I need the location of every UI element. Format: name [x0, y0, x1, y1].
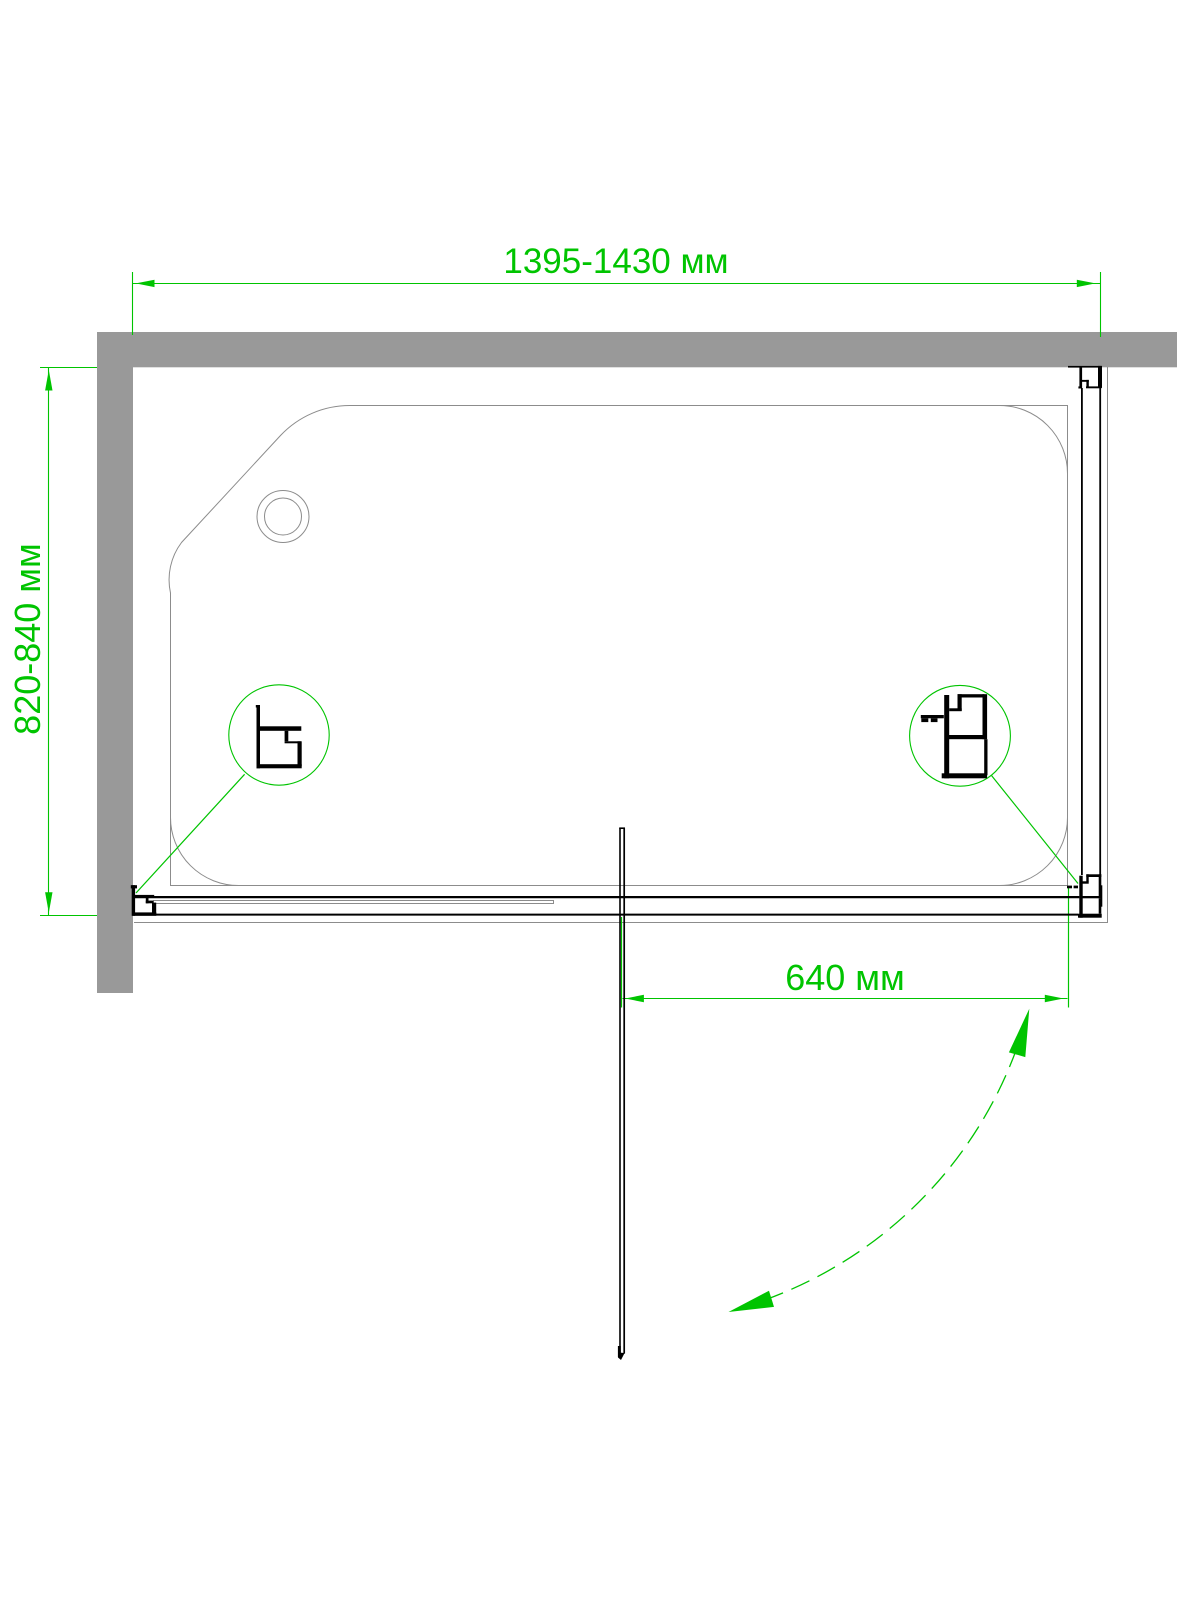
- svg-text:820-840 мм: 820-840 мм: [7, 543, 48, 735]
- svg-text:640 мм: 640 мм: [785, 957, 905, 998]
- svg-text:1395-1430 мм: 1395-1430 мм: [503, 242, 728, 281]
